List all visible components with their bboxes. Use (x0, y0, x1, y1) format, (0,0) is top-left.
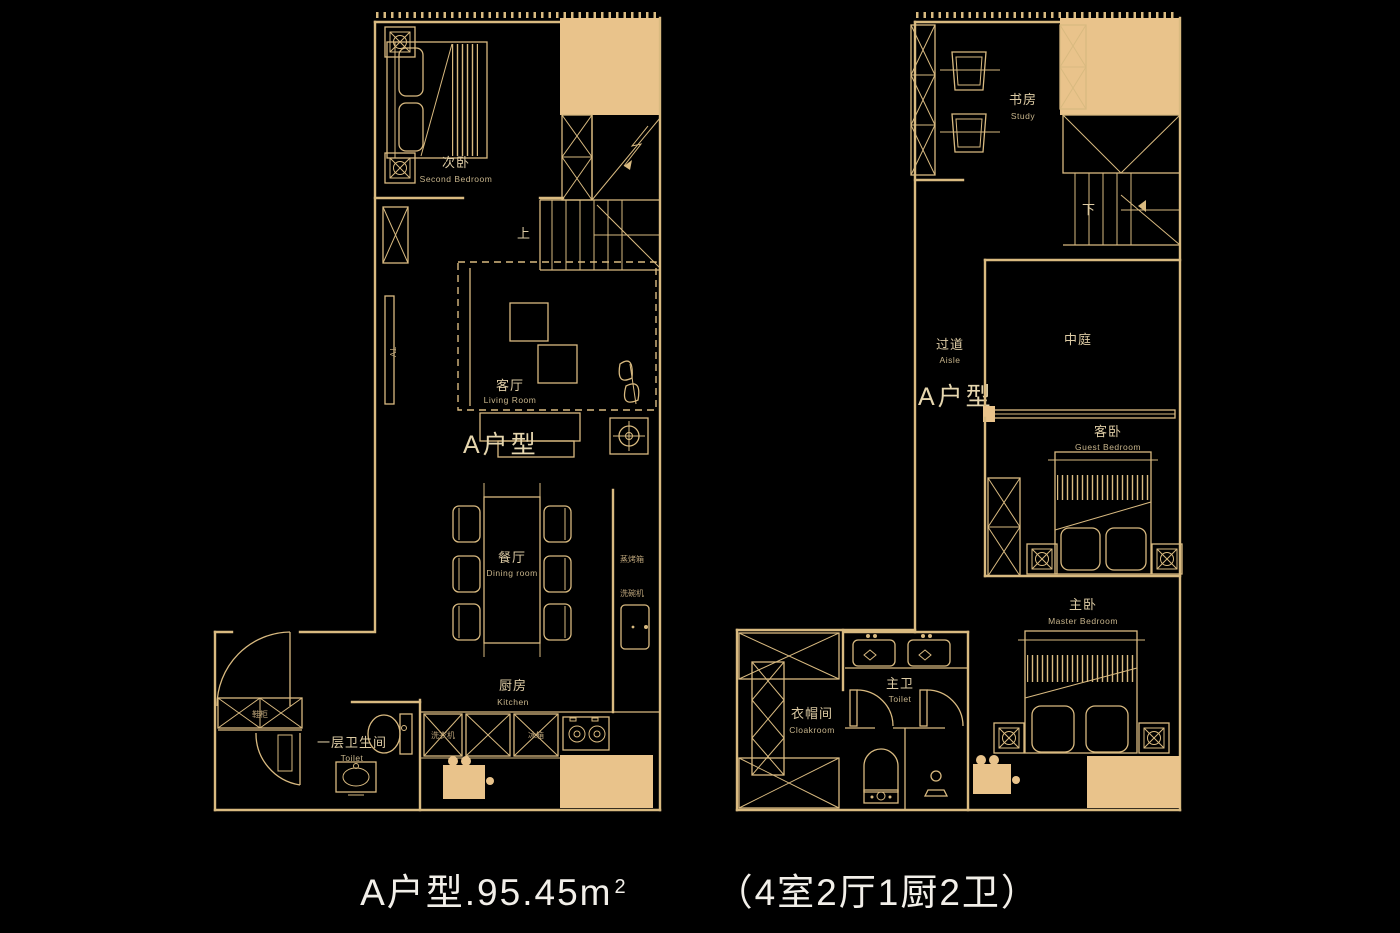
dining-label-en: Dining room (486, 568, 537, 578)
dining-label-zh: 餐厅 (498, 550, 526, 565)
master-sink-unit (973, 755, 1020, 794)
floor1-topright-solid-block (560, 18, 660, 115)
bathroom-sinks (845, 634, 968, 668)
aisle-label-en: Aisle (940, 355, 961, 365)
nightstand-lamp (1027, 544, 1057, 574)
living-room-label-en: Living Room (484, 395, 537, 405)
study-label-en: Study (1011, 111, 1035, 121)
entrance-door (217, 632, 290, 706)
tv-label: TV (388, 347, 397, 358)
stairs-up (540, 115, 660, 270)
nightstand-lamp (385, 153, 415, 183)
steam-oven-label: 蒸烤箱 (620, 554, 644, 564)
master-bed (1018, 631, 1145, 753)
nightstand-lamp (994, 723, 1024, 753)
guest-label-en: Guest Bedroom (1075, 442, 1141, 452)
master-label-zh: 主卧 (1069, 597, 1097, 612)
floorplan-canvas: 次卧 Second Bedroom 上 TV (0, 0, 1400, 933)
master-solid-block (1087, 756, 1180, 808)
caption-area-sup: 2 (614, 876, 627, 899)
toilet-inner-door (256, 733, 300, 785)
guest-wardrobe (988, 478, 1020, 576)
second-bedroom-label-en: Second Bedroom (420, 174, 493, 184)
atrium-label: 中庭 (1064, 332, 1092, 347)
floor2-unit-label: A户型 (918, 383, 994, 411)
dining-chair (453, 556, 480, 592)
living-room (458, 262, 656, 457)
washer-label: 洗衣机 (431, 730, 455, 740)
master-label-en: Master Bedroom (1048, 616, 1118, 626)
toilet-label-en: Toilet (341, 753, 364, 763)
dining-chair (453, 506, 480, 542)
toilet-label-zh: 一层卫生间 (317, 735, 387, 750)
caption-area: A户型.95.45m (360, 862, 612, 916)
stairs-down-label: 下 (1082, 202, 1096, 217)
aisle-label-zh: 过道 (936, 337, 964, 352)
study-desks (940, 52, 1000, 152)
floor2-plan: 书房 Study 下 过道 Aisle A户型 (737, 15, 1182, 810)
fridge-label: 冰箱 (528, 730, 544, 740)
guest-bed (1048, 452, 1158, 574)
cloakroom-label-en: Cloakroom (789, 725, 835, 735)
master-toilet-label-zh: 主卫 (886, 676, 914, 691)
stairs-down (1063, 115, 1180, 245)
floor1-plan: 次卧 Second Bedroom 上 TV (215, 15, 660, 810)
dishwasher-label: 洗碗机 (620, 588, 644, 598)
floor1-unit-label: A户型 (463, 431, 539, 459)
dining-chair (453, 604, 480, 640)
dining-chair (544, 604, 571, 640)
study-label-zh: 书房 (1009, 92, 1037, 107)
toilet-sink (336, 762, 376, 795)
guest-label-zh: 客卧 (1094, 424, 1122, 439)
shoe-cabinet-label: 鞋柜 (252, 709, 268, 719)
kitchen-label-zh: 厨房 (499, 678, 527, 693)
second-bedroom-label-zh: 次卧 (442, 155, 470, 170)
shower-drain (925, 771, 947, 796)
dining-chair (544, 506, 571, 542)
dining-chair (544, 556, 571, 592)
caption-spec: （4室2厅1厨2卫） (716, 862, 1040, 916)
floorplan-page: 次卧 Second Bedroom 上 TV (0, 0, 1400, 933)
stairs-up-label: 上 (517, 226, 531, 241)
master-toilet-label-en: Toilet (889, 694, 912, 704)
kitchen-label-en: Kitchen (497, 697, 529, 707)
kitchen-sink (443, 756, 494, 799)
nightstand-lamp (1139, 723, 1169, 753)
second-bedroom-bed (387, 42, 487, 158)
cloakroom-label-zh: 衣帽间 (791, 706, 833, 721)
nightstand-lamp (385, 27, 415, 57)
plan-caption: A户型.95.45m2 （4室2厅1厨2卫） (0, 862, 1400, 916)
bathroom-wc (864, 749, 898, 803)
kitchen-solid-block (560, 755, 653, 808)
living-room-label-zh: 客厅 (496, 378, 524, 393)
nightstand-lamp (1152, 544, 1182, 574)
